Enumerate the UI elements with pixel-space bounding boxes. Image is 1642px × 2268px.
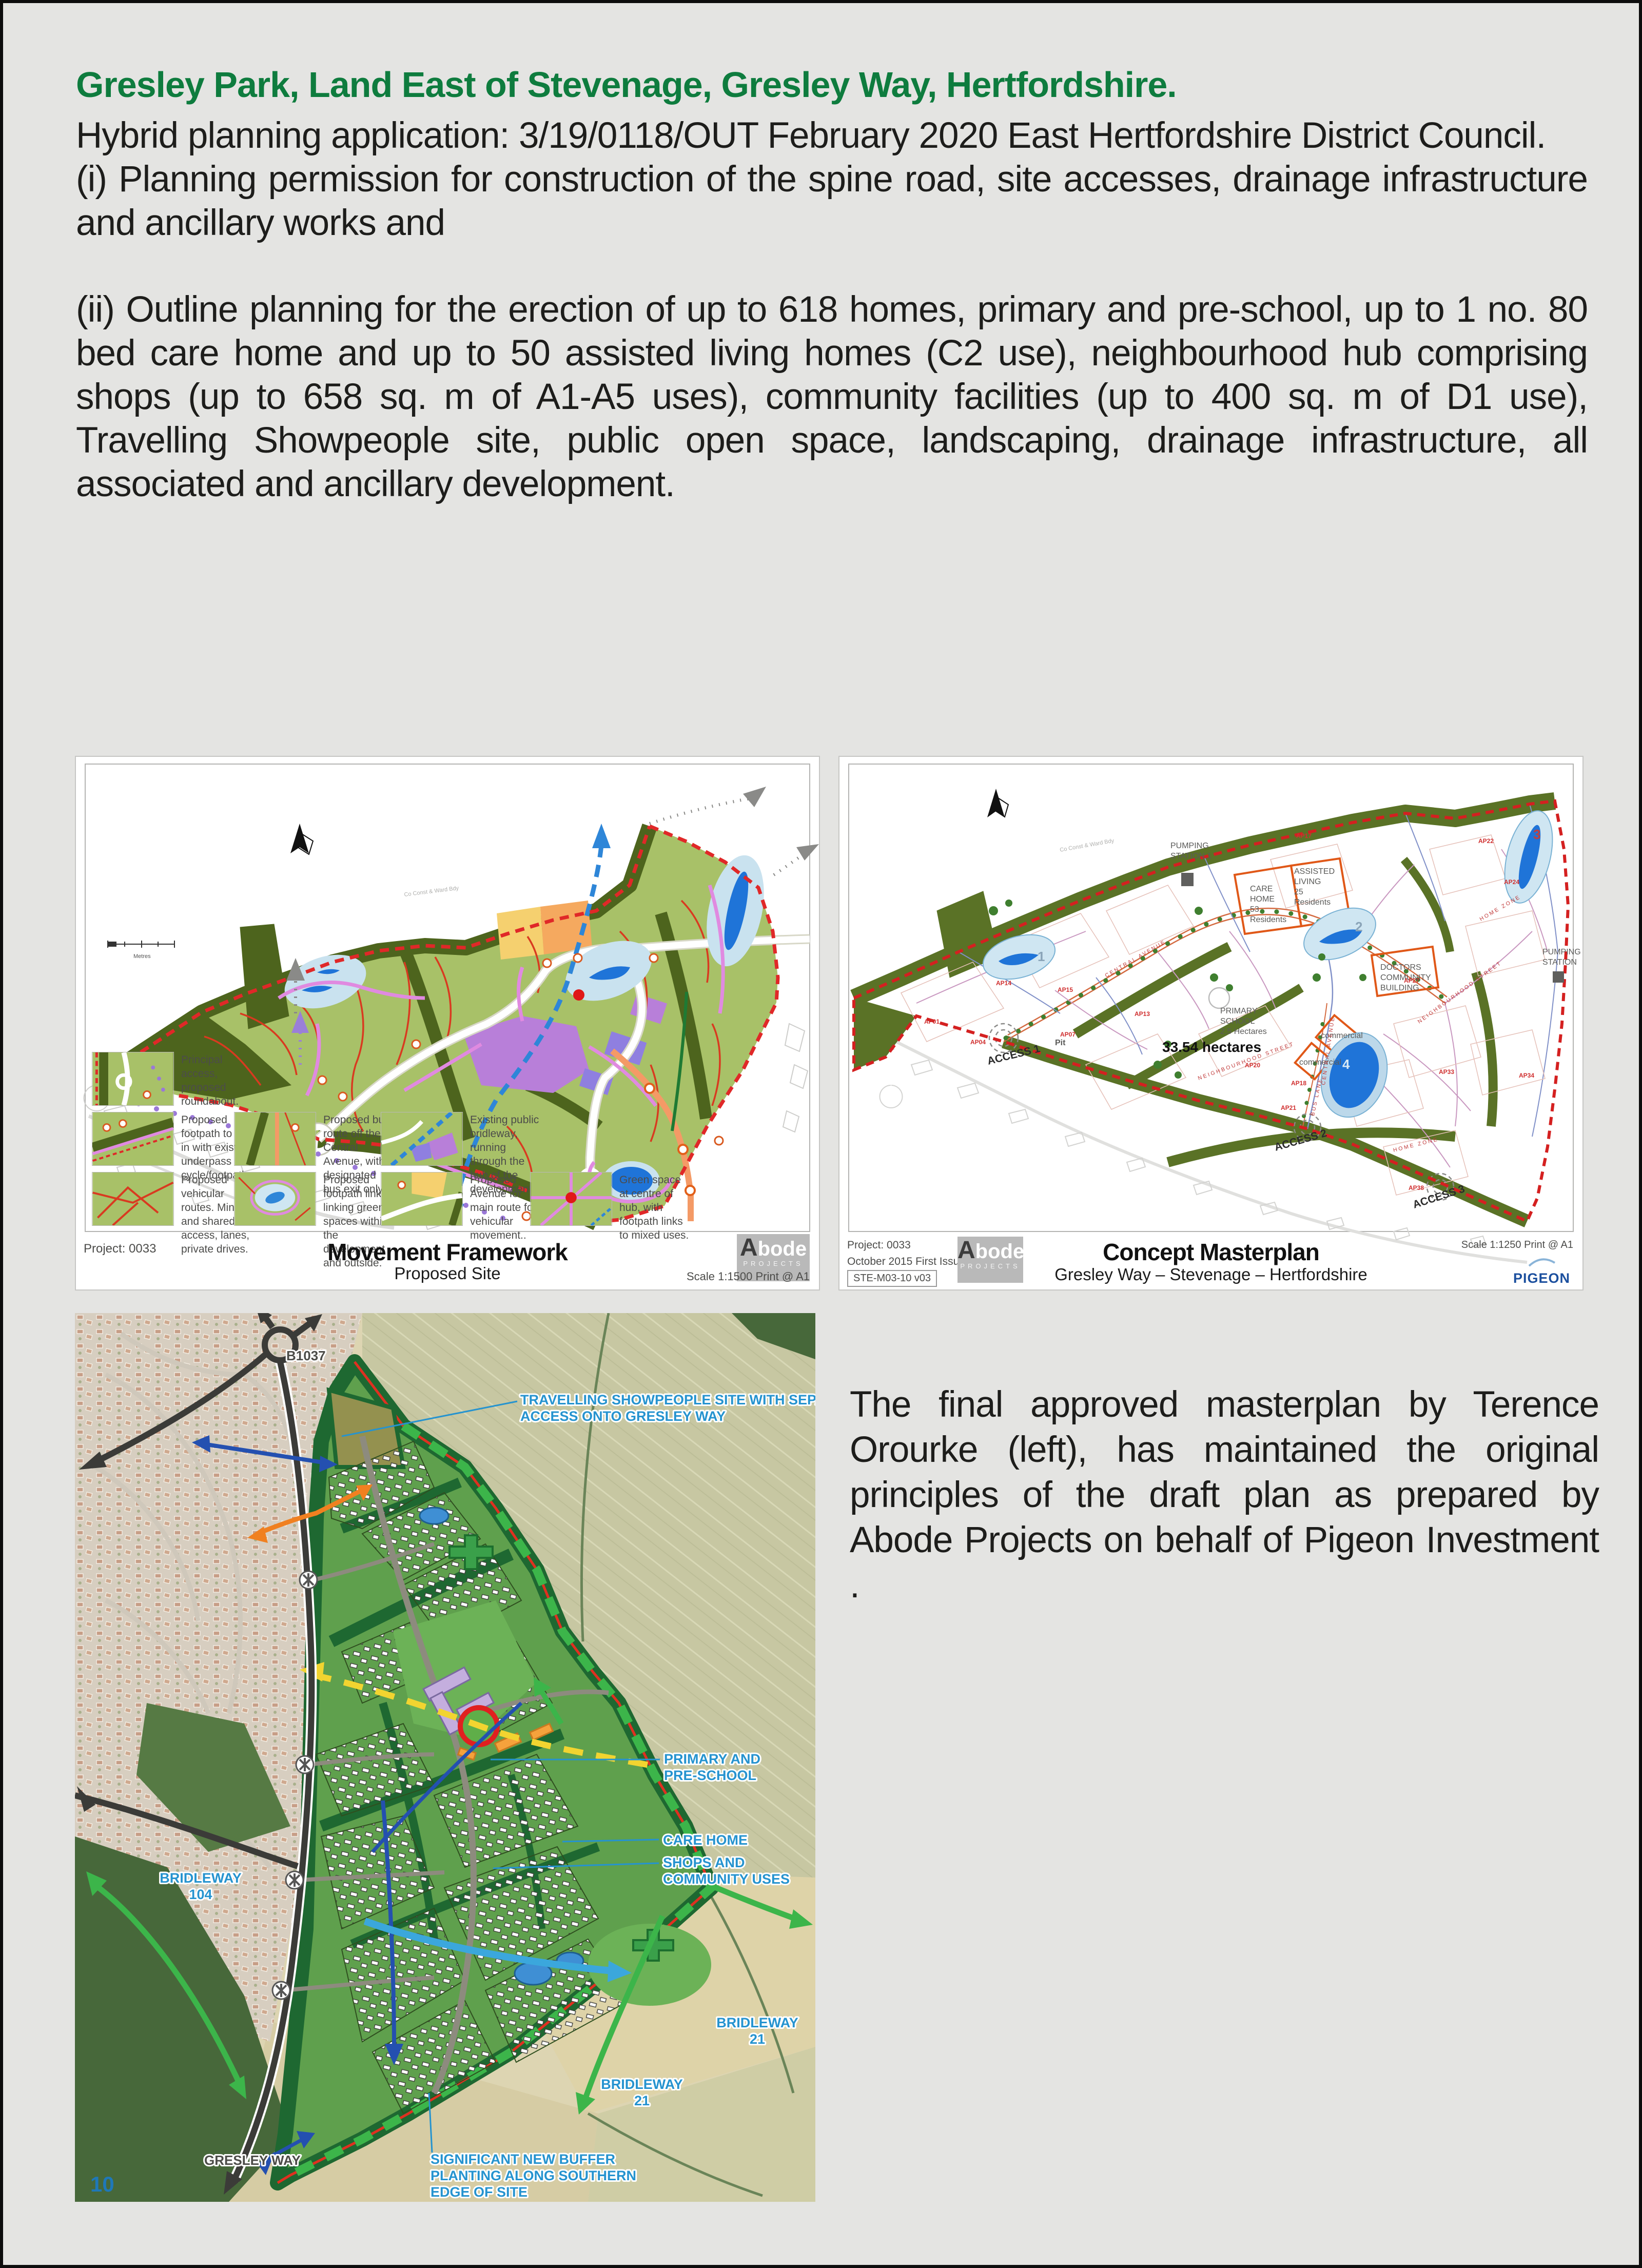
showpeople-label: TRAVELLING SHOWPEOPLE SITE WITH SEPARATE xyxy=(520,1392,815,1407)
figure-scale: Scale 1:1250 Print @ A1 xyxy=(1461,1239,1573,1251)
caption-text: The final approved masterplan by Terence… xyxy=(850,1382,1599,1608)
pumping-station-label: PUMPING xyxy=(1542,948,1581,956)
pumping-station-label: STATION xyxy=(1542,958,1577,967)
parcel-label: AP21 xyxy=(1281,1104,1296,1111)
legend-thumbnail xyxy=(530,1172,612,1226)
primary-school-label: PRIMARY xyxy=(1220,1007,1258,1015)
legend-thumbnail xyxy=(234,1172,316,1226)
pit-label: Pit xyxy=(1055,1039,1066,1047)
pumping-station-1-label: STATION 1 xyxy=(1170,852,1211,861)
buffer-label: EDGE OF SITE xyxy=(431,2184,527,2200)
primary-school-label: PRE-SCHOOL xyxy=(664,1768,756,1783)
header: Gresley Park, Land East of Stevenage, Gr… xyxy=(76,64,1588,506)
parcel-label: AP13 xyxy=(1135,1010,1150,1018)
parcel-label: AP04 xyxy=(970,1039,986,1046)
parcel-label: AP34 xyxy=(1519,1072,1534,1079)
parcel-label: AP07 xyxy=(1060,1031,1076,1038)
pigeon-logo-text: PIGEON xyxy=(1513,1270,1570,1286)
care-home-label: Residents xyxy=(1250,915,1286,924)
doctors-label: BUILDING xyxy=(1380,984,1419,992)
shops-label: SHOPS AND xyxy=(663,1855,745,1870)
doctors-label: DOCTORS xyxy=(1380,963,1421,972)
abode-logo-rest: bode xyxy=(758,1238,807,1260)
b1037-label: B1037 xyxy=(286,1348,326,1363)
legend-label: Green space at centre of hub, with footp… xyxy=(619,1173,692,1242)
lake-number: 2 xyxy=(1355,919,1362,934)
site-area-label: 33.54 hectares xyxy=(1162,1039,1261,1055)
buffer-label: PLANTING ALONG SOUTHERN xyxy=(431,2168,636,2183)
aerial-masterplan-map: B1037 TRAVELLING SHOWPEOPLE SITE WITH SE… xyxy=(75,1313,815,2202)
page-title: Gresley Park, Land East of Stevenage, Gr… xyxy=(76,64,1588,106)
bridleway104-label: 104 xyxy=(189,1887,212,1902)
assisted-living-label: 25 xyxy=(1294,888,1303,896)
parcel-label: AP15 xyxy=(1058,986,1073,993)
parcel-label: AP38 xyxy=(1409,1184,1424,1191)
document-page: Gresley Park, Land East of Stevenage, Gr… xyxy=(0,0,1642,2268)
scalebar-label: Metres xyxy=(133,953,151,960)
primary-school-label: 2.5 Hectares xyxy=(1220,1027,1267,1036)
showpeople-label: ACCESS ONTO GRESLEY WAY xyxy=(520,1409,726,1424)
pumping-station-1-icon xyxy=(1181,873,1194,886)
hub-marker xyxy=(573,989,584,1001)
pigeon-logo: PIGEON xyxy=(1513,1256,1570,1286)
parcel-label: AP20 xyxy=(1245,1062,1260,1069)
buffer-label: SIGNIFICANT NEW BUFFER xyxy=(431,2152,615,2167)
legend-thumbnail xyxy=(92,1172,174,1226)
parcel-label: AP27 xyxy=(1404,977,1419,984)
pumping-station-icon xyxy=(1553,971,1564,983)
primary-school-label: PRIMARY AND xyxy=(664,1751,760,1767)
abode-logo-a: A xyxy=(740,1234,758,1261)
legend-thumbnail xyxy=(381,1112,463,1166)
pumping-station-1-label: PUMPING xyxy=(1170,842,1209,850)
movement-framework-figure: Metres Co Const & Ward Bdy Principal acc… xyxy=(75,756,820,1291)
parcel-label: AP22 xyxy=(1478,837,1494,845)
lake-number: 3 xyxy=(1533,827,1540,842)
parcel-label: AP18 xyxy=(1291,1080,1306,1087)
figure-title: Movement Framework xyxy=(76,1238,819,1266)
assisted-living-label: Residents xyxy=(1294,898,1331,907)
legend-thumbnail xyxy=(92,1112,174,1166)
page-number: 10 xyxy=(90,2172,114,2196)
care-home-label: CARE xyxy=(1250,885,1273,893)
figure-subtitle: Gresley Way – Stevenage – Hertfordshire xyxy=(839,1265,1582,1284)
lake-number: 4 xyxy=(1342,1057,1350,1072)
parcel-label: AP24 xyxy=(1504,878,1519,886)
bridleway21-label: BRIDLEWAY xyxy=(716,2015,798,2030)
assisted-living-label: LIVING xyxy=(1294,877,1321,886)
figure-scale: Scale 1:1500 Print @ A1 xyxy=(687,1270,810,1283)
legend-thumbnail xyxy=(234,1112,316,1166)
legend-thumbnail xyxy=(381,1172,463,1226)
legend-thumbnail xyxy=(92,1052,174,1106)
bridleway21-label: 21 xyxy=(750,2031,765,2047)
aerial-masterplan-figure: B1037 TRAVELLING SHOWPEOPLE SITE WITH SE… xyxy=(75,1313,815,2202)
parcel-label: AP33 xyxy=(1439,1068,1454,1076)
primary-school-label: SCHOOL xyxy=(1220,1017,1255,1026)
care-home-label: 53 xyxy=(1250,905,1259,914)
concept-masterplan-figure: PUMPING STATION 1 CARE HOME 53 Residents… xyxy=(838,756,1584,1291)
bridleway21-label: BRIDLEWAY xyxy=(601,2077,683,2092)
parcel-label: AP14 xyxy=(996,980,1011,987)
parcel-label: AP17 xyxy=(1296,832,1312,839)
shops-label: COMMUNITY USES xyxy=(663,1871,790,1887)
pigeon-swoosh-icon xyxy=(1526,1256,1557,1268)
commercial-label: commercial xyxy=(1299,1058,1341,1067)
concept-masterplan-map: PUMPING STATION 1 CARE HOME 53 Residents… xyxy=(839,757,1582,1289)
assisted-living-label: ASSISTED xyxy=(1294,867,1335,876)
application-intro: Hybrid planning application: 3/19/0118/O… xyxy=(76,114,1588,158)
bridleway21-label: 21 xyxy=(634,2093,650,2108)
item-i: (i) Planning permission for construction… xyxy=(76,158,1588,245)
legend-label: Principal access, proposed roundabout. xyxy=(181,1053,254,1108)
care-home-label: CARE HOME xyxy=(663,1832,748,1848)
care-home-label: HOME xyxy=(1250,895,1275,904)
parcel-label: AP01 xyxy=(924,1018,940,1025)
gresley-way-label: GRESLEY WAY xyxy=(204,2153,301,2168)
abode-logo-sub: PROJECTS xyxy=(737,1260,810,1267)
bridleway104-label: BRIDLEWAY xyxy=(160,1870,242,1886)
item-ii: (ii) Outline planning for the erection o… xyxy=(76,288,1588,506)
lake-number: 1 xyxy=(1038,949,1045,964)
